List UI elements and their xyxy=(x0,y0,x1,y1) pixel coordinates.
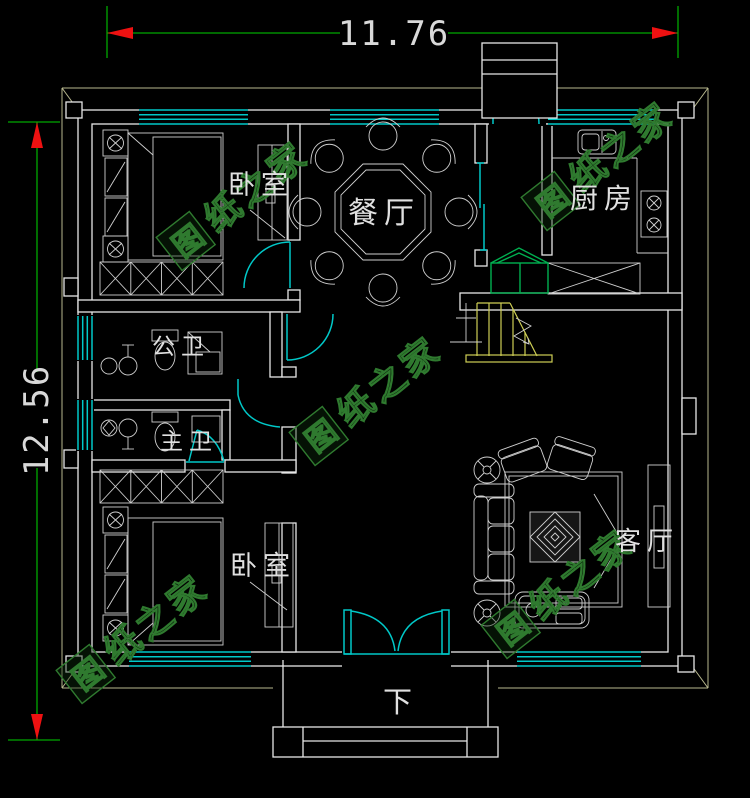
dim-arrow-down xyxy=(31,714,43,740)
hall-shoe-cabinet xyxy=(491,248,548,293)
stair-break-arrow xyxy=(514,318,531,344)
room-label-bedroom-bottom: 卧室 xyxy=(230,551,296,582)
door-dining-slider xyxy=(477,163,487,250)
dimension-top: 11.76 xyxy=(107,6,678,58)
dim-arrow-left xyxy=(107,27,133,39)
dimension-width-value: 11.76 xyxy=(338,14,450,54)
living-carpet xyxy=(530,512,580,562)
room-label-guest-bath: 公卫 xyxy=(152,334,210,360)
dim-arrow-right xyxy=(652,27,678,39)
sofa xyxy=(474,484,514,594)
door-bath-corridor xyxy=(238,379,280,427)
wardrobe-bottom xyxy=(100,470,223,503)
room-label-living: 客厅 xyxy=(615,527,679,557)
room-label-dining: 餐厅 xyxy=(348,196,420,231)
svg-text:纸之家: 纸之家 xyxy=(330,329,450,435)
floor-plan-canvas: 图 纸之家 图 纸之家 图 纸之家 图 纸之家 图 纸之家 卧室 餐厅 厨房 公… xyxy=(0,0,750,793)
room-label-bedroom-top: 卧室 xyxy=(228,170,294,201)
room-label-kitchen: 厨房 xyxy=(570,182,638,215)
kitchen-stove xyxy=(641,191,667,237)
watermark-4: 图 纸之家 xyxy=(56,566,216,705)
door-bedroom-top xyxy=(244,242,290,288)
label-entry-step-down: 下 xyxy=(383,685,418,719)
door-main-entry-double xyxy=(344,610,449,654)
wardrobe-top xyxy=(100,262,223,295)
watermark-3: 图 纸之家 xyxy=(289,328,449,467)
plant-top xyxy=(474,457,500,483)
dimension-height-value: 12.56 xyxy=(17,364,57,476)
dim-arrow-up xyxy=(31,122,43,148)
door-guest-bath xyxy=(287,314,333,360)
armchair-right xyxy=(546,436,596,481)
staircase xyxy=(450,303,552,362)
rear-porch xyxy=(482,43,557,118)
dimension-left: 12.56 xyxy=(8,122,60,740)
room-label-master-bath: 主卫 xyxy=(160,429,218,455)
